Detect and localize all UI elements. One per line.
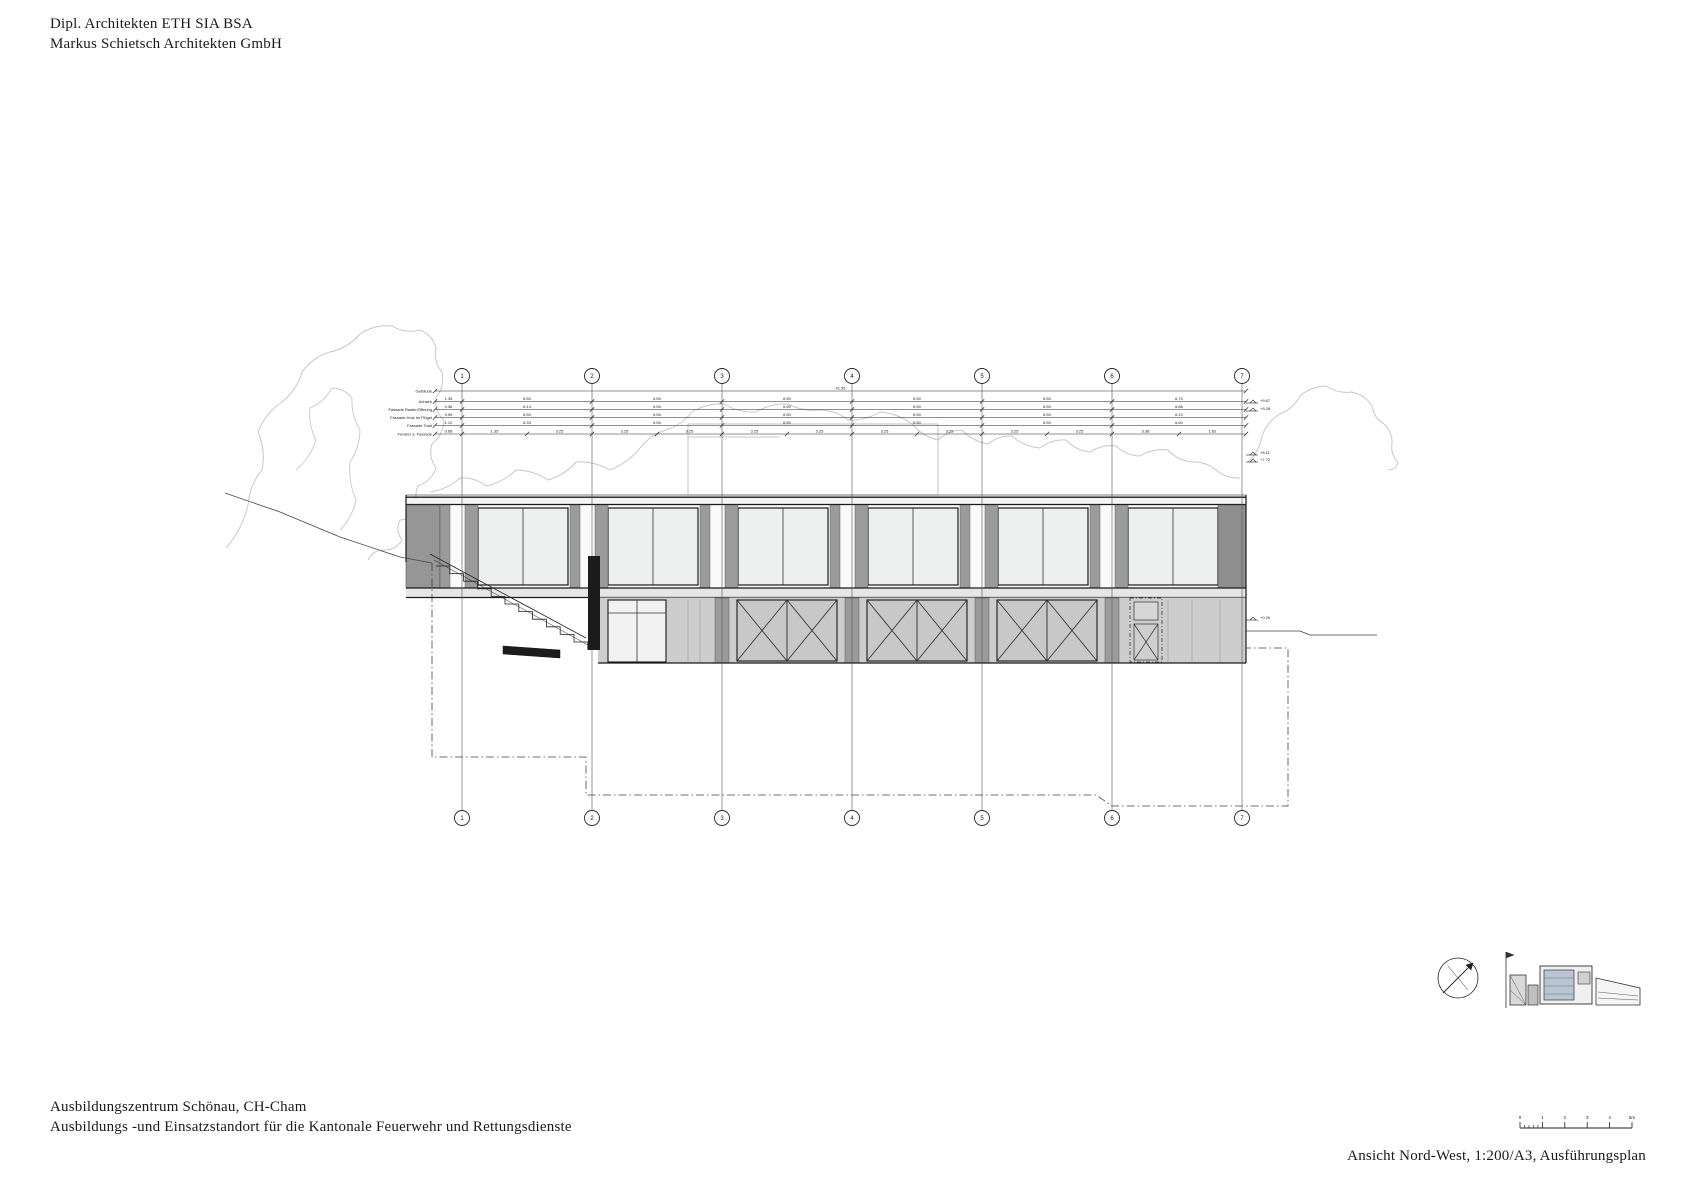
dimension-value: 6.10 (1175, 412, 1184, 417)
dimension-value: 6.70 (1175, 396, 1184, 401)
site-building-roof (1544, 970, 1574, 1000)
dimension-row-label: Fassade Total (407, 423, 432, 428)
facade-pier-left (406, 505, 440, 588)
dimension-value: 3.38 (1142, 429, 1151, 434)
rooftop-outline (688, 424, 938, 495)
floor-slab (406, 588, 1246, 598)
elevation-arrow (1250, 408, 1256, 411)
dimension-value: 1.35 (491, 429, 500, 434)
dimension-value: 6.86 (1175, 404, 1184, 409)
dimension-band: Gebäude41.55Achsen1.356.506.506.506.506.… (388, 386, 1248, 437)
elevation-drawing: Gebäude41.55Achsen1.356.506.506.506.506.… (0, 0, 1697, 1200)
building-facade (406, 495, 1246, 663)
scale-bar-label: 2 (1564, 1115, 1567, 1120)
dimension-value: 6.60 (1175, 420, 1184, 425)
dimension-value: 6.50 (1043, 404, 1052, 409)
dimension-value: 3.25 (881, 429, 890, 434)
service-door-panel (1134, 602, 1158, 620)
facade-band (1115, 505, 1128, 588)
dimension-value: 6.50 (913, 420, 922, 425)
facade-band (570, 505, 580, 588)
dimension-value: 1.35 (445, 396, 454, 401)
dimension-value: 6.50 (653, 404, 662, 409)
terrain-line-left (225, 493, 432, 563)
dimension-value: 0.95 (445, 412, 454, 417)
dimension-value: 3.25 (1076, 429, 1085, 434)
tree-outline-left-2 (296, 388, 360, 530)
dimension-value: 6.50 (783, 412, 792, 417)
elevation-label: +8.11 (1260, 450, 1271, 455)
facade-band (960, 505, 970, 588)
site-track (1596, 978, 1640, 1005)
dimension-value: 41.55 (835, 386, 846, 391)
scale-bar-label: 5m (1629, 1115, 1636, 1120)
dimension-value: 3.25 (686, 429, 695, 434)
dimension-row-label: Achsen (419, 399, 432, 404)
dimension-value: 6.50 (1043, 396, 1052, 401)
dimension-value: 6.50 (1043, 420, 1052, 425)
facade-band (700, 505, 710, 588)
dimension-value: 6.50 (653, 412, 662, 417)
dimension-value: 6.50 (783, 420, 792, 425)
dimension-row-label: Fassade Raster/Öffnung (388, 407, 432, 412)
scale-bar-label: 1 (1541, 1115, 1544, 1120)
elevation-label: +7.72 (1260, 457, 1271, 462)
tree-outline-center (430, 404, 1240, 492)
elevation-label: +0.26 (1260, 615, 1271, 620)
elevation-markers: +9.67+9.28+8.11+7.72+0.26 (1246, 398, 1271, 620)
compass-crossline (1448, 966, 1468, 990)
north-arrow-group (1438, 958, 1478, 998)
elevation-label: +9.67 (1260, 398, 1271, 403)
dimension-value: 0.36 (445, 404, 454, 409)
sheet-caption: Ansicht Nord-West, 1:200/A3, Ausführungs… (1347, 1146, 1646, 1166)
retaining-wall (503, 646, 560, 658)
dimension-row-label: Gebäude (416, 389, 433, 394)
dimension-value: 6.50 (1043, 412, 1052, 417)
dimension-value: 6.33 (523, 420, 532, 425)
tree-outline-right (1248, 386, 1398, 470)
dimension-value: 3.25 (556, 429, 565, 434)
dimension-value: 1.12 (445, 420, 454, 425)
dimension-value: 6.50 (913, 396, 922, 401)
dimension-value: 6.50 (913, 412, 922, 417)
dimension-value: 3.25 (1011, 429, 1020, 434)
facade-band (725, 505, 738, 588)
dimension-value: 6.50 (523, 412, 532, 417)
dimension-value: 3.25 (816, 429, 825, 434)
facade-band (465, 505, 478, 588)
dimension-value: 0.68 (445, 429, 454, 434)
facade-band (985, 505, 998, 588)
scale-bar-label: 4 (1608, 1115, 1611, 1120)
elevation-arrow (1250, 617, 1256, 620)
terrain-line-right (1246, 631, 1377, 635)
facade-band (440, 505, 450, 588)
dimension-value: 1.62 (1209, 429, 1218, 434)
dimension-row-label: Fassade Holz im Flügel (390, 415, 432, 420)
scale-bar-label: 0 (1519, 1115, 1522, 1120)
facade-band (830, 505, 840, 588)
dimension-value: 6.14 (523, 404, 532, 409)
dimension-value: 6.50 (653, 396, 662, 401)
scale-bar: 012345m (1519, 1115, 1636, 1128)
facade-band (1090, 505, 1100, 588)
project-title: Ausbildungszentrum Schönau, CH-Cham (50, 1097, 572, 1117)
elevation-label: +9.28 (1260, 406, 1271, 411)
flag (1506, 952, 1514, 958)
plan-sheet: Dipl. Architekten ETH SIA BSA Markus Sch… (0, 0, 1697, 1200)
facade-band (855, 505, 868, 588)
wall-section-cut (588, 556, 600, 650)
dimension-value: 6.50 (783, 404, 792, 409)
dimension-value: 3.25 (751, 429, 760, 434)
site-building-annex (1578, 972, 1590, 984)
dimension-value: 3.25 (621, 429, 630, 434)
dimension-value: 6.50 (783, 396, 792, 401)
project-subtitle: Ausbildungs -und Einsatzstandort für die… (50, 1117, 572, 1137)
dimension-value: 3.25 (946, 429, 955, 434)
dimension-row-label: Fenster a. Fassade (398, 432, 433, 437)
dimension-value: 6.50 (913, 404, 922, 409)
dimension-value: 6.50 (523, 396, 532, 401)
project-block: Ausbildungszentrum Schönau, CH-Cham Ausb… (50, 1097, 572, 1137)
site-sketch-group (1506, 952, 1640, 1008)
scale-bar-label: 3 (1586, 1115, 1589, 1120)
parapet-band (406, 497, 1246, 504)
rooftop-outline-group (688, 424, 938, 495)
elevation-arrow (1250, 400, 1256, 403)
site-building-tiny (1528, 985, 1538, 1005)
dimension-value: 6.50 (653, 420, 662, 425)
